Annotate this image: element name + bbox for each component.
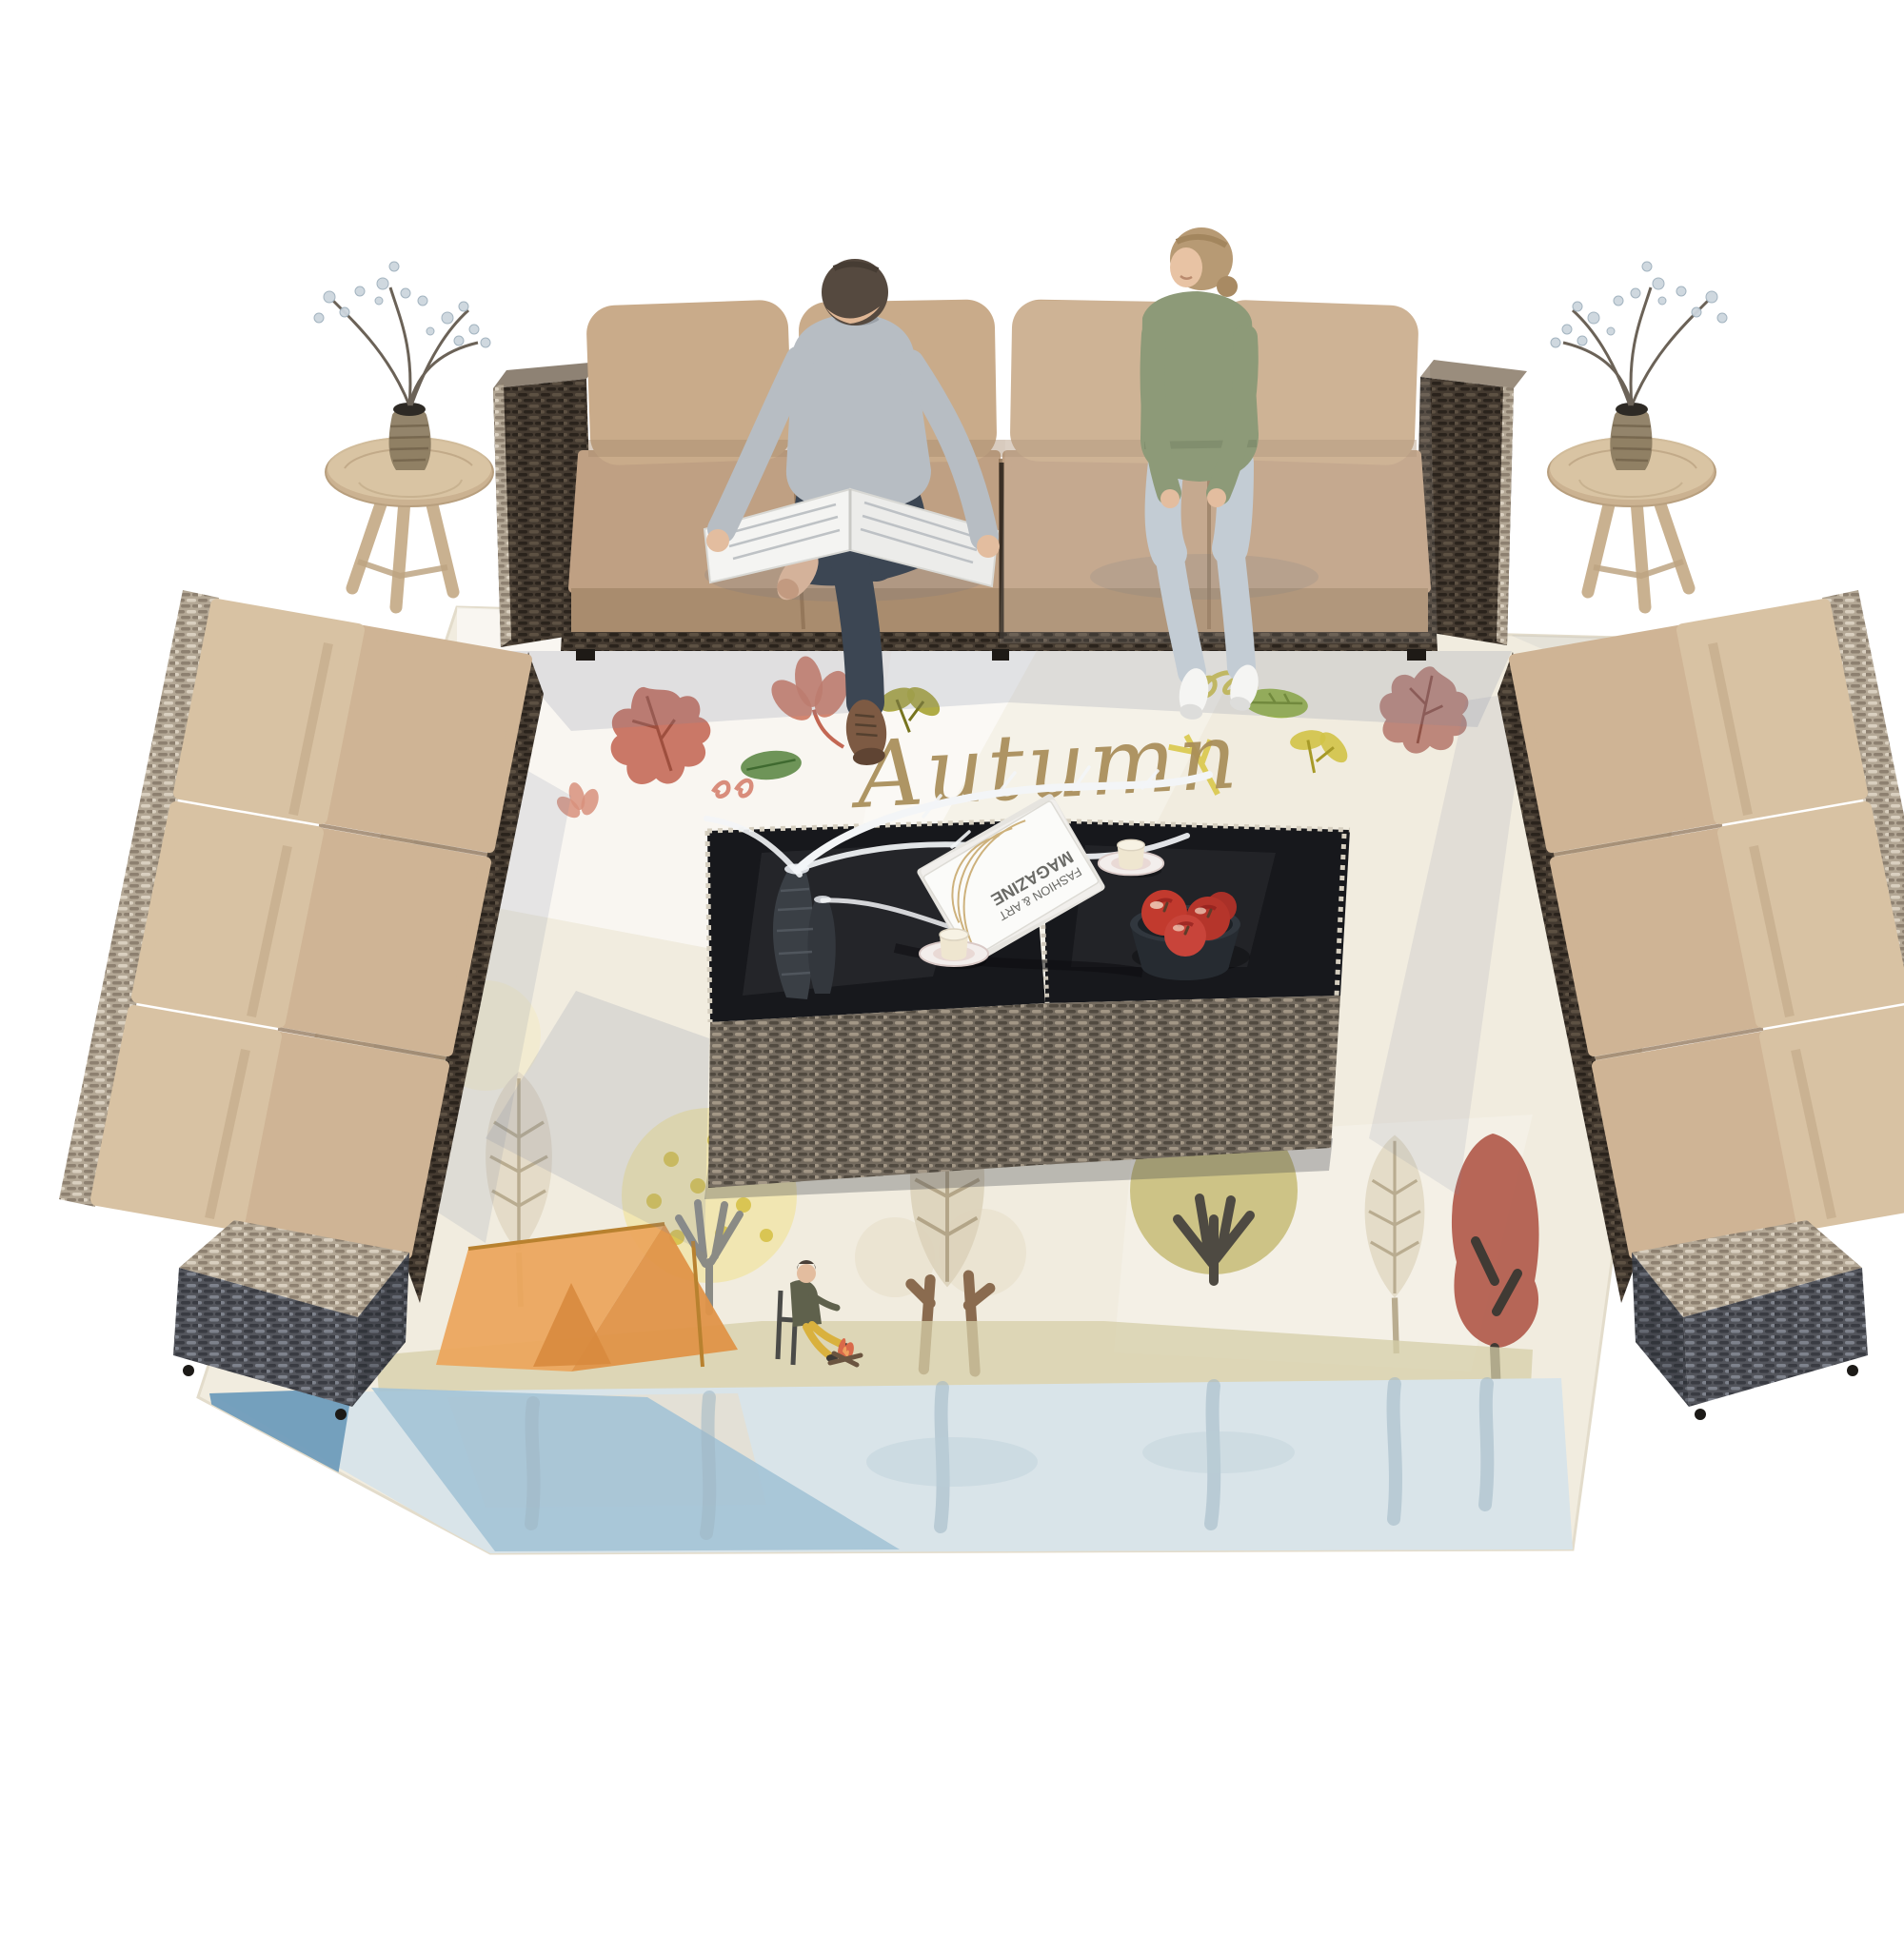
top-sofa: [493, 299, 1527, 661]
product-photo-patio-set: Autumn: [38, 15, 1904, 1919]
scene: Autumn: [38, 15, 1904, 1919]
